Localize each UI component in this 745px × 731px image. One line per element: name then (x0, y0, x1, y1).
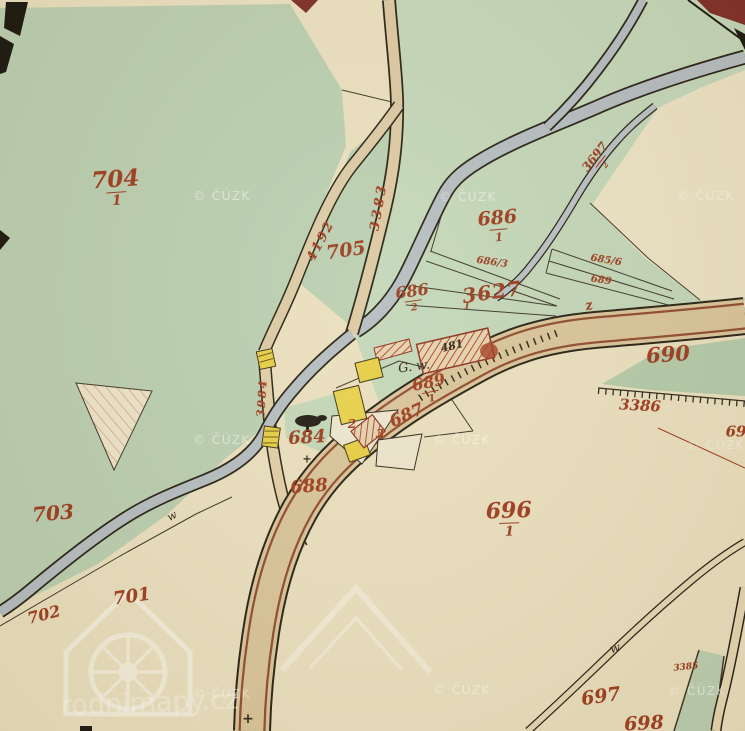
mark-culvert: z (584, 299, 595, 313)
house-481: 481 (440, 338, 465, 354)
road-3984: 3984 (255, 378, 269, 417)
parcel-696: 6961 (485, 499, 532, 539)
mark-plus-bottom: + (242, 712, 254, 726)
parcel-686-1: 6861 (477, 207, 519, 244)
parcel-701: 701 (112, 585, 152, 608)
road-3627: 3627 (461, 278, 523, 306)
parcel-684: 684 (288, 428, 326, 448)
mark-path-w2: w (165, 509, 178, 523)
mark-path-w1: w (608, 641, 621, 655)
map-labels-layer: 70417053383419268616862686/336271685/668… (0, 0, 745, 731)
label-3: 3 (376, 428, 384, 440)
parcel-687: 687 (387, 401, 426, 431)
parcel-697: 697 (580, 685, 622, 709)
parcel-698: 698 (624, 713, 665, 731)
label-2: 2 (348, 418, 356, 430)
parcel-690: 690 (645, 342, 690, 366)
watermark-logo-text: rodnimapy.cz (60, 686, 239, 719)
watermark-cuzk: © ČÚZK (193, 434, 251, 446)
cadastral-map-canvas[interactable]: 70417053383419268616862686/336271685/668… (0, 0, 745, 731)
watermark-cuzk: © ČÚZK (433, 684, 491, 696)
parcel-686-2: 6862 (394, 281, 431, 314)
watermark-cuzk: © ČÚZK (439, 191, 497, 203)
watermark-cuzk: © ČÚZK (677, 190, 735, 202)
watermark-cuzk: © ČÚZK (433, 434, 491, 446)
watermark-cuzk: © ČÚZK (193, 190, 251, 202)
parcel-689-strip: 689 (590, 274, 612, 287)
parcel-688: 688 (290, 477, 329, 498)
watermark-cuzk: © ČÚZK (668, 685, 726, 697)
road-3385: 3385 (673, 662, 699, 674)
watermark-cuzk: © ČÚZK (687, 439, 745, 451)
road-3383: 3383 (368, 182, 389, 232)
parcel-704: 7041 (91, 166, 142, 210)
parcel-702: 702 (26, 603, 62, 627)
parcel-703: 703 (31, 501, 74, 525)
label-1: 1 (464, 303, 470, 312)
parcel-705: 705 (325, 239, 367, 263)
road-3386: 3386 (619, 397, 661, 414)
parcel-686-3: 686/3 (476, 256, 509, 270)
mark-plus-684: + (302, 454, 311, 465)
parcel-685-6: 685/6 (590, 254, 623, 269)
road-3697-2: 36972 (580, 140, 618, 180)
